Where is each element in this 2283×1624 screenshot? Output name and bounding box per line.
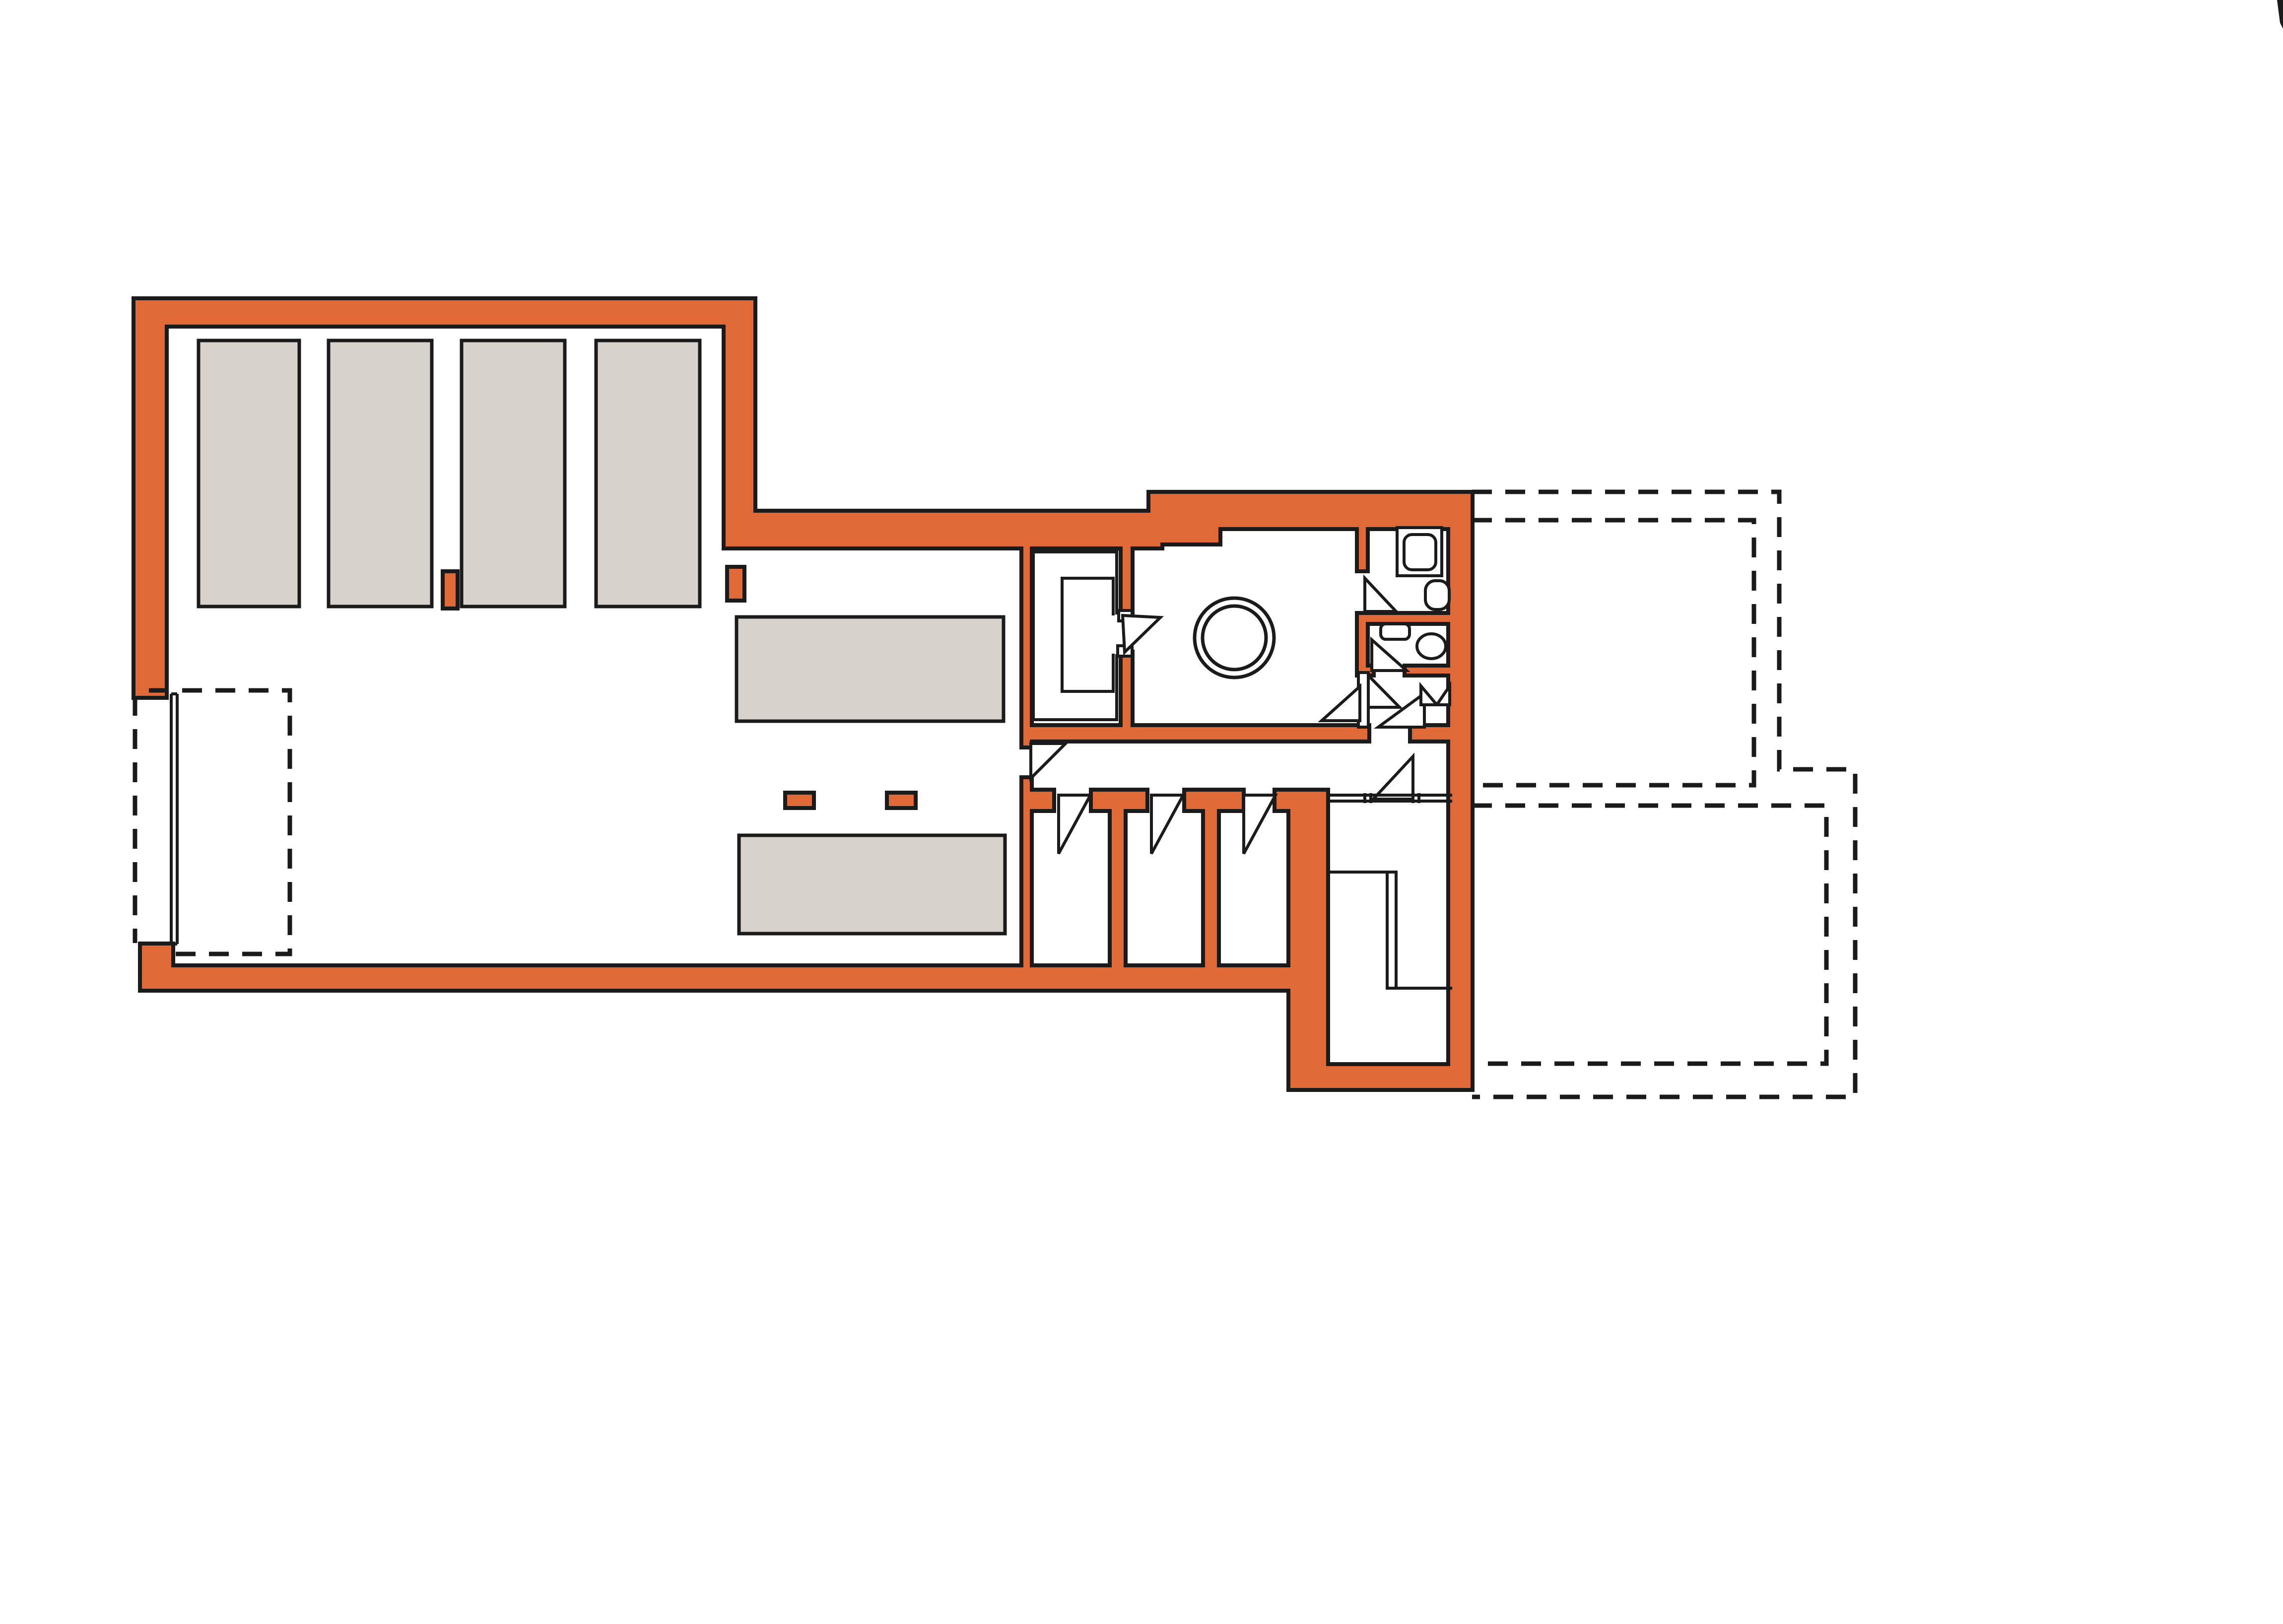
door-room-1 — [1059, 795, 1090, 854]
garage-bay-1 — [199, 340, 299, 607]
wall-wc-bottom-b — [1407, 668, 1454, 674]
toilet-wc — [1417, 634, 1446, 659]
door-closet-x2 — [1437, 686, 1450, 705]
wall-room-divider-1 — [1112, 804, 1124, 973]
door-sauna-leaf — [1123, 615, 1160, 652]
scan-corner-mark — [2277, 0, 2283, 29]
wall-bigroom-bottom-right — [1412, 727, 1454, 740]
wall-bigroom-bottom-left — [1023, 727, 1367, 740]
table-upper — [737, 617, 1004, 721]
wall-rooms-top-d — [1276, 792, 1326, 809]
wall-connector — [1290, 792, 1326, 1088]
wall-right-exterior — [1450, 494, 1471, 1088]
floor-plan-page — [0, 0, 2283, 1624]
wall-corridor-left-thin — [1023, 779, 1030, 989]
column-hall-east — [889, 795, 914, 806]
wall-garage-right — [726, 300, 753, 546]
toilet-bath — [1425, 581, 1449, 609]
wall-room-divider-2 — [1205, 804, 1217, 973]
table-lower — [739, 835, 1005, 934]
wall-sauna-right-lower — [1123, 654, 1131, 731]
door-room-2 — [1151, 795, 1183, 854]
sink-wc — [1381, 624, 1410, 639]
door-bigroom-se — [1322, 686, 1360, 721]
door-room-3 — [1244, 795, 1276, 854]
door-stair — [1373, 756, 1413, 799]
wall-sauna-right-upper — [1123, 513, 1131, 614]
stair-center-divider — [1387, 872, 1396, 988]
wall-hall-divider-band — [726, 513, 1160, 546]
wall-sauna-left-thin — [1023, 513, 1030, 745]
pillar-garage-east — [729, 569, 742, 599]
garage-bay-4 — [596, 340, 700, 607]
floor-plan-drawing — [0, 0, 2283, 1624]
garage-bay-3 — [462, 340, 565, 607]
garage-bay-2 — [329, 340, 432, 607]
door-bathroom — [1365, 578, 1396, 611]
door-closet-a — [1368, 676, 1400, 707]
round-table-outer — [1195, 598, 1274, 677]
round-table-inner — [1203, 606, 1266, 670]
wall-bottom-main — [142, 967, 1300, 989]
door-corridor-west — [1031, 744, 1066, 778]
terrace-ne-inner-outline — [1472, 520, 1754, 785]
terrace-ne-outer-outline — [1472, 492, 1855, 1097]
wall-wc-left-thin — [1359, 615, 1366, 674]
wall-left-exterior — [135, 300, 165, 696]
wall-rooms-top-a — [1023, 792, 1052, 809]
sauna-bench — [1062, 578, 1113, 691]
door-closet-x1 — [1421, 686, 1437, 705]
column-hall-west — [787, 795, 812, 806]
pillar-garage-mid — [445, 573, 456, 607]
wall-bottom-stair — [1290, 1066, 1471, 1088]
shower-tray — [1404, 535, 1436, 570]
terrace-se-inner-outline — [1472, 806, 1826, 1064]
wall-top-right-section — [1150, 494, 1471, 527]
wall-top-garage — [135, 300, 753, 325]
wall-bath-wc-divider — [1359, 615, 1454, 622]
wall-bath-left-thin — [1359, 524, 1366, 569]
door-wc — [1372, 640, 1407, 671]
